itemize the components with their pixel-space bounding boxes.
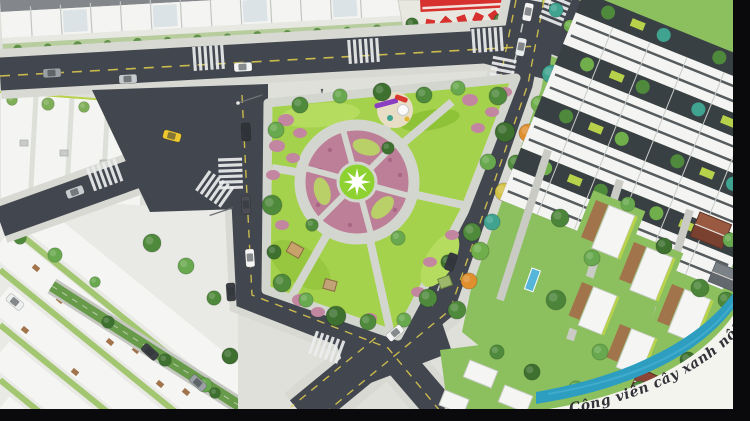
tree — [222, 348, 238, 364]
render-stage: Công viên cây xanh nội khu — [0, 0, 750, 421]
tree — [102, 316, 115, 329]
frame-bottom — [0, 409, 750, 421]
car — [234, 62, 252, 72]
tree — [207, 291, 221, 305]
car — [43, 68, 61, 78]
car — [245, 249, 255, 268]
tree — [178, 258, 194, 274]
tree — [48, 248, 62, 262]
car — [241, 196, 251, 215]
car — [241, 123, 251, 141]
car — [226, 283, 236, 302]
tree — [159, 354, 172, 367]
aerial-render: Công viên cây xanh nội khu — [0, 0, 750, 421]
center-star — [343, 168, 371, 196]
tree — [143, 234, 161, 252]
roof-garden-tree — [42, 98, 55, 111]
roof-garden-tree — [79, 102, 90, 113]
frame-right — [733, 0, 750, 421]
tree — [90, 277, 101, 288]
car — [119, 74, 137, 84]
